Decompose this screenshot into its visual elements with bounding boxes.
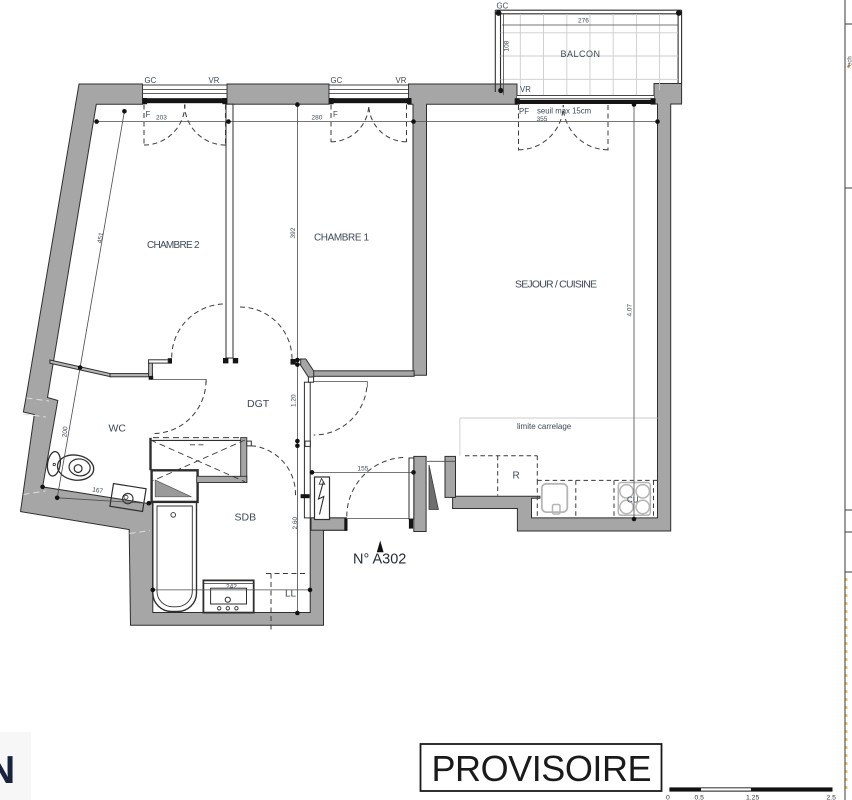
svg-text:VR: VR (209, 76, 220, 85)
svg-text:N° A302: N° A302 (353, 552, 406, 568)
svg-text:SEJOUR / CUISINE: SEJOUR / CUISINE (515, 279, 597, 291)
svg-text:0: 0 (666, 795, 670, 800)
svg-text:200: 200 (62, 426, 70, 438)
svg-text:VR: VR (520, 85, 531, 94)
svg-text:392: 392 (290, 227, 297, 238)
svg-text:seuil max 15cm: seuil max 15cm (537, 107, 591, 116)
svg-text:ech: ech (848, 56, 852, 66)
svg-text:167: 167 (92, 487, 104, 496)
svg-text:BALCON: BALCON (561, 49, 601, 59)
svg-text:F: F (333, 110, 338, 119)
svg-text:N: N (0, 749, 15, 792)
svg-text:451: 451 (97, 232, 106, 244)
svg-text:108: 108 (504, 40, 511, 51)
svg-text:LL: LL (285, 589, 297, 600)
svg-text:155: 155 (358, 466, 369, 473)
svg-text:GC: GC (331, 76, 343, 85)
svg-text:280: 280 (312, 114, 323, 121)
svg-text:276: 276 (578, 18, 589, 25)
svg-text:1.20: 1.20 (291, 394, 298, 407)
svg-text:limite carrelage: limite carrelage (517, 422, 572, 431)
svg-text:355: 355 (537, 116, 548, 123)
svg-text:2.60: 2.60 (292, 516, 299, 529)
svg-text:GC: GC (145, 76, 157, 85)
svg-text:SDB: SDB (235, 512, 257, 524)
svg-text:PROVISOIRE: PROVISOIRE (432, 748, 652, 789)
svg-text:CHAMBRE 1: CHAMBRE 1 (314, 233, 369, 244)
svg-text:1.25: 1.25 (746, 795, 759, 800)
svg-text:203: 203 (156, 115, 167, 122)
svg-text:242: 242 (226, 584, 237, 591)
svg-text:GC: GC (497, 2, 509, 11)
svg-text:WC: WC (109, 423, 127, 435)
svg-text:CHAMBRE 2: CHAMBRE 2 (147, 240, 200, 251)
svg-text:CU: CU (627, 496, 639, 505)
svg-text:F: F (146, 110, 151, 119)
svg-text:2.5: 2.5 (827, 795, 837, 800)
svg-text:4.07: 4.07 (627, 303, 634, 316)
svg-text:0.5: 0.5 (695, 795, 705, 800)
svg-text:DGT: DGT (247, 398, 270, 410)
svg-text:R: R (513, 471, 520, 482)
svg-text:PF: PF (519, 107, 529, 116)
svg-text:VR: VR (396, 76, 407, 85)
